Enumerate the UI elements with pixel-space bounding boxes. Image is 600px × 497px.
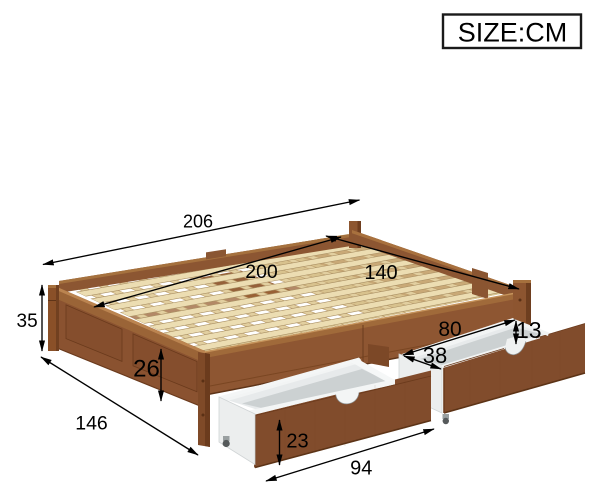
svg-text:35: 35 (17, 311, 38, 332)
svg-text:23: 23 (286, 431, 308, 453)
svg-text:146: 146 (75, 412, 108, 434)
svg-text:80: 80 (438, 318, 461, 341)
svg-text:13: 13 (516, 317, 542, 343)
svg-text:38: 38 (423, 343, 447, 368)
svg-text:140: 140 (364, 262, 397, 284)
svg-text:206: 206 (183, 212, 213, 232)
svg-text:94: 94 (350, 458, 372, 480)
svg-text:26: 26 (133, 356, 160, 383)
svg-text:200: 200 (245, 261, 278, 283)
svg-text:SIZE:CM: SIZE:CM (458, 18, 568, 48)
